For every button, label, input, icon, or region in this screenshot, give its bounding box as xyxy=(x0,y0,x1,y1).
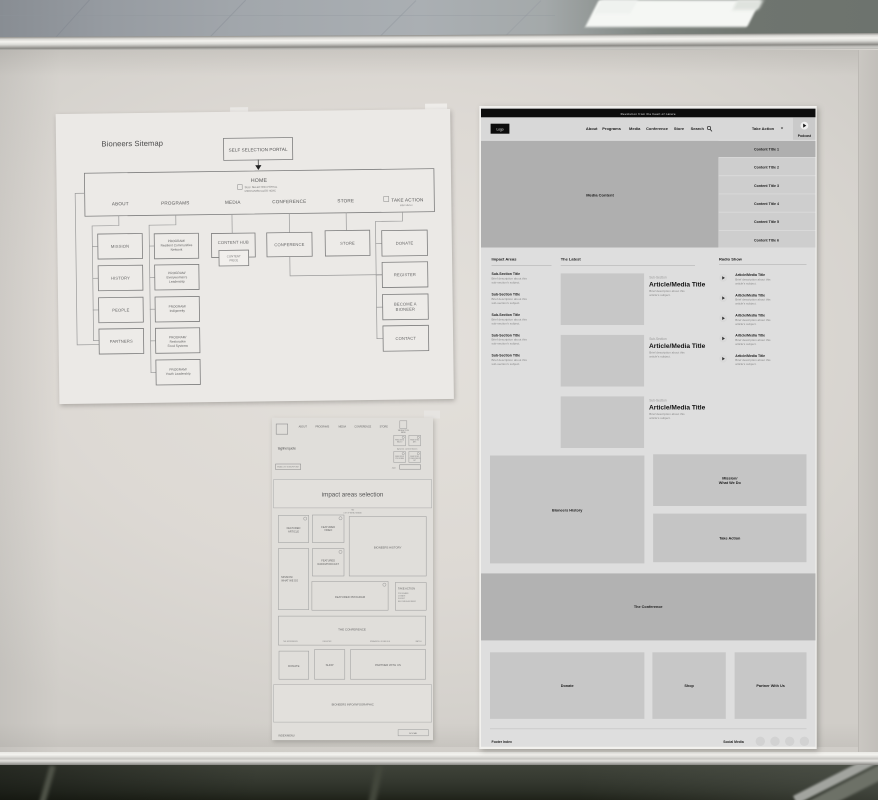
svg-text:Bioneers History: Bioneers History xyxy=(552,509,583,513)
svg-text:MINI MENU: MINI MENU xyxy=(400,204,413,207)
svg-text:CONFERENCE: CONFERENCE xyxy=(272,199,306,204)
svg-text:Take Action: Take Action xyxy=(752,126,775,131)
svg-text:article's subject.: article's subject. xyxy=(649,293,670,297)
svg-text:dynamic content boxes: dynamic content boxes xyxy=(397,448,417,451)
svg-text:REGISTER: REGISTER xyxy=(394,272,416,277)
svg-text:PIECE: PIECE xyxy=(229,258,238,262)
svg-text:FEATURED: FEATURED xyxy=(321,559,335,563)
svg-text:The Latest: The Latest xyxy=(561,257,582,262)
svg-text:Sub-Section Title: Sub-Section Title xyxy=(492,293,521,297)
svg-text:DONATE: DONATE xyxy=(396,241,414,246)
svg-text:STORE: STORE xyxy=(340,241,355,246)
svg-text:PROGRAMS: PROGRAMS xyxy=(398,592,409,595)
svg-text:sub-section's subject.: sub-section's subject. xyxy=(492,362,521,366)
svg-text:VIDEO: VIDEO xyxy=(324,528,332,532)
svg-text:Partner With Us: Partner With Us xyxy=(756,684,784,688)
svg-text:Content Title 3: Content Title 3 xyxy=(754,184,779,188)
svg-text:The Conference: The Conference xyxy=(634,605,663,609)
svg-text:MECHANISM ALSO HERE: MECHANISM ALSO HERE xyxy=(245,189,277,193)
svg-text:MEDIA: MEDIA xyxy=(339,426,347,429)
svg-text:tagline/quote: tagline/quote xyxy=(278,447,296,451)
svg-text:STORE: STORE xyxy=(380,426,389,429)
svg-text:CONFERENCE: CONFERENCE xyxy=(354,426,371,429)
svg-text:Media: Media xyxy=(629,126,641,131)
svg-text:article's subject.: article's subject. xyxy=(649,416,670,420)
svg-text:sub-section's subject.: sub-section's subject. xyxy=(492,321,521,325)
svg-text:TAKE ACTION: TAKE ACTION xyxy=(398,586,415,590)
svg-text:Take Action: Take Action xyxy=(719,536,741,540)
svg-text:FEATURED PROGRAM: FEATURED PROGRAM xyxy=(335,595,366,599)
svg-text:Food Systems: Food Systems xyxy=(168,344,189,348)
svg-text:Article/Media Title: Article/Media Title xyxy=(649,282,706,289)
svg-text:REGISTER: REGISTER xyxy=(323,641,332,643)
svg-text:WHAT WE DO: WHAT WE DO xyxy=(281,578,298,582)
svg-text:Shop: Shop xyxy=(684,684,694,688)
svg-text:Search: Search xyxy=(691,126,705,131)
svg-text:RADIO/PODCAST: RADIO/PODCAST xyxy=(317,562,339,566)
svg-text:Store: Store xyxy=(674,126,685,131)
svg-text:Programs: Programs xyxy=(602,126,621,131)
svg-text:Sub-Section Title: Sub-Section Title xyxy=(492,354,521,358)
svg-text:SHOP: SHOP xyxy=(326,663,334,667)
svg-text:sub-section's subject.: sub-section's subject. xyxy=(492,301,521,305)
svg-text:SELF SELECTION PORTAL: SELF SELECTION PORTAL xyxy=(229,147,288,153)
svg-text:ARTICLE: ARTICLE xyxy=(288,529,299,533)
svg-text:BIT: BIT xyxy=(413,460,416,462)
svg-text:Footer Index: Footer Index xyxy=(492,740,512,744)
svg-text:BECOME A BIONEER: BECOME A BIONEER xyxy=(398,600,417,603)
svg-text:article's subject.: article's subject. xyxy=(735,322,756,326)
svg-text:Content Title 2: Content Title 2 xyxy=(754,166,779,170)
svg-text:Youth Leadership: Youth Leadership xyxy=(166,372,191,376)
svg-text:STORE: STORE xyxy=(337,198,354,203)
svg-text:SPEAKERS & SCHEDULE: SPEAKERS & SCHEDULE xyxy=(370,640,391,643)
svg-text:Impact Areas: Impact Areas xyxy=(492,257,518,262)
svg-text:ART.: ART. xyxy=(413,441,417,444)
svg-text:Sub-Section: Sub-Section xyxy=(649,337,667,341)
svg-text:article's subject.: article's subject. xyxy=(735,342,756,346)
svg-text:PEOPLE: PEOPLE xyxy=(112,307,129,312)
svg-text:THE EXPERIENCE: THE EXPERIENCE xyxy=(283,641,299,643)
svg-text:HOME: HOME xyxy=(251,178,268,184)
svg-text:Media Content: Media Content xyxy=(586,193,614,198)
svg-text:Sub-Section Title: Sub-Section Title xyxy=(492,272,521,276)
svg-text:MEDIA: MEDIA xyxy=(225,200,241,205)
svg-text:Sub-Section: Sub-Section xyxy=(649,275,667,279)
svg-text:Bioneers Sitemap: Bioneers Sitemap xyxy=(101,139,163,149)
svg-text:impact areas selection: impact areas selection xyxy=(322,491,384,498)
svg-text:Podcast: Podcast xyxy=(798,134,812,138)
svg-text:Social Media: Social Media xyxy=(723,740,744,744)
svg-text:PARTNER WITH US: PARTNER WITH US xyxy=(375,663,401,667)
svg-text:BIONEERS INFO/INFOGRAPHIC: BIONEERS INFO/INFOGRAPHIC xyxy=(332,703,374,707)
svg-text:CONTACT: CONTACT xyxy=(395,336,416,341)
svg-text:Radio Show: Radio Show xyxy=(719,257,743,262)
svg-text:CONTENT HUB: CONTENT HUB xyxy=(218,240,249,245)
svg-text:EMAIL LIST SIGNUP/FORM: EMAIL LIST SIGNUP/FORM xyxy=(277,466,299,469)
svg-text:BIONEER: BIONEER xyxy=(396,307,416,312)
svg-text:What We Do: What We Do xyxy=(719,481,742,485)
svg-text:Article/Media Title: Article/Media Title xyxy=(649,343,706,350)
svg-text:PROGRAM: PROGRAM xyxy=(395,457,404,460)
svg-text:BIONEERS HISTORY: BIONEERS HISTORY xyxy=(374,546,402,550)
svg-text:Conference: Conference xyxy=(646,126,669,131)
svg-text:TAKE ACTION: TAKE ACTION xyxy=(391,197,423,202)
svg-text:MISSION/: MISSION/ xyxy=(281,575,293,579)
svg-text:Logo: Logo xyxy=(496,127,503,131)
svg-text:ABOUT: ABOUT xyxy=(112,201,129,206)
svg-text:Mission/: Mission/ xyxy=(722,476,738,480)
svg-text:PROGRAMS: PROGRAMS xyxy=(315,426,329,429)
svg-text:Sub-Section Title: Sub-Section Title xyxy=(492,313,521,317)
svg-text:article's subject.: article's subject. xyxy=(649,355,670,359)
svg-text:SOCIAL: SOCIAL xyxy=(409,732,418,735)
svg-text:article's subject.: article's subject. xyxy=(735,302,756,306)
svg-text:sub-section's subject.: sub-section's subject. xyxy=(492,281,521,285)
svg-text:CONFERENCE: CONFERENCE xyxy=(274,242,304,247)
svg-text:article's subject.: article's subject. xyxy=(735,281,756,285)
svg-text:Sub-Section: Sub-Section xyxy=(649,398,667,402)
svg-text:SELF SELECTION PORTAL: SELF SELECTION PORTAL xyxy=(245,185,278,189)
svg-text:Indigeneity: Indigeneity xyxy=(170,309,186,313)
svg-text:DONATE: DONATE xyxy=(288,664,300,668)
svg-text:MISSION: MISSION xyxy=(111,244,129,249)
svg-text:Sub-Section Title: Sub-Section Title xyxy=(492,333,521,337)
svg-text:FEATURED: FEATURED xyxy=(287,526,301,530)
svg-text:ABOUT: ABOUT xyxy=(299,426,308,429)
svg-text:Content Title 5: Content Title 5 xyxy=(754,220,779,224)
svg-text:DONATE: DONATE xyxy=(398,595,406,598)
svg-text:MENU: MENU xyxy=(401,432,407,434)
svg-text:sub-section's subject.: sub-section's subject. xyxy=(492,342,521,346)
svg-text:Donate: Donate xyxy=(561,684,574,688)
svg-text:THE CONFERENCE: THE CONFERENCE xyxy=(338,627,366,631)
svg-text:Content Title 1: Content Title 1 xyxy=(754,147,779,151)
svg-text:Revolution from the heart of n: Revolution from the heart of nature xyxy=(621,112,676,116)
svg-text:HISTORY: HISTORY xyxy=(111,275,130,280)
svg-text:article's subject.: article's subject. xyxy=(735,362,756,366)
svg-text:Leadership: Leadership xyxy=(169,280,185,284)
svg-text:About: About xyxy=(586,126,598,131)
svg-text:Article/Media Title: Article/Media Title xyxy=(649,405,706,412)
svg-text:RADIO: RADIO xyxy=(397,441,403,444)
svg-text:Content Title 6: Content Title 6 xyxy=(754,238,779,242)
svg-text:Network: Network xyxy=(171,248,183,252)
svg-text:FEATURED: FEATURED xyxy=(321,525,335,529)
svg-text:Content Title 4: Content Title 4 xyxy=(754,202,779,206)
svg-text:INDEX/MENU: INDEX/MENU xyxy=(278,733,294,737)
svg-text:WATCH: WATCH xyxy=(416,640,423,643)
svg-text:PARTNERS: PARTNERS xyxy=(110,339,133,344)
svg-text:PROGRAMS: PROGRAMS xyxy=(161,200,189,205)
